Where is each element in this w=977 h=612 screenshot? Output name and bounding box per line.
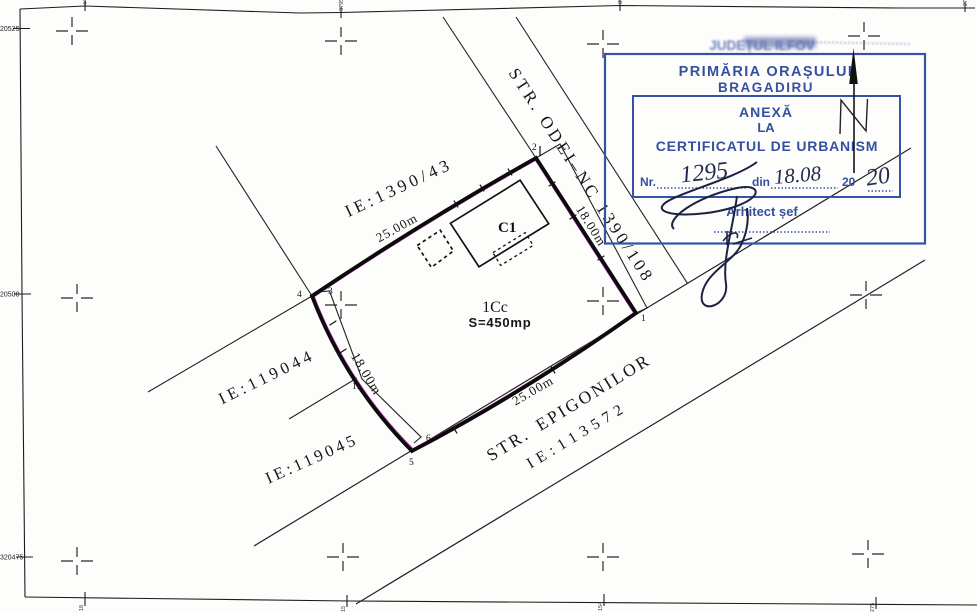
svg-text:4: 4 [297, 290, 302, 300]
svg-text:S=450mp: S=450mp [468, 315, 531, 330]
svg-text:320475: 320475 [0, 555, 23, 562]
svg-text:JUDEȚUL ILFOV: JUDEȚUL ILFOV [709, 38, 815, 53]
svg-text:154: 154 [598, 602, 604, 611]
svg-text:5: 5 [409, 458, 414, 468]
svg-text:2: 2 [532, 143, 537, 153]
svg-text:275: 275 [963, 0, 969, 6]
svg-text:1295: 1295 [679, 158, 729, 189]
svg-text:20500: 20500 [0, 292, 20, 299]
svg-text:PRIMĂRIA ORAȘULUI: PRIMĂRIA ORAȘULUI [679, 63, 854, 80]
svg-text:20525: 20525 [0, 26, 20, 33]
svg-text:din: din [752, 175, 770, 189]
svg-text:3792: 3792 [618, 0, 624, 4]
svg-text:275: 275 [870, 603, 876, 612]
svg-text:1Cc: 1Cc [482, 299, 508, 316]
svg-text:CERTIFICATUL DE URBANISM: CERTIFICATUL DE URBANISM [656, 138, 878, 154]
svg-text:3: 3 [328, 287, 333, 297]
svg-text:18: 18 [79, 605, 85, 611]
svg-text:Nr.: Nr. [640, 175, 656, 189]
svg-text:20: 20 [842, 175, 856, 189]
svg-text:18.08: 18.08 [773, 161, 823, 189]
svg-text:11: 11 [352, 382, 361, 392]
svg-text:C1: C1 [498, 220, 516, 236]
svg-text:446: 446 [83, 0, 89, 5]
svg-text:3795: 3795 [339, 0, 345, 11]
svg-text:6: 6 [426, 434, 431, 444]
svg-text:20: 20 [864, 163, 891, 192]
svg-text:1: 1 [641, 314, 646, 324]
svg-text:ANEXĂ: ANEXĂ [739, 104, 793, 120]
svg-text:15: 15 [341, 606, 347, 612]
svg-text:LA: LA [757, 120, 775, 135]
svg-text:BRAGADIRU: BRAGADIRU [718, 80, 814, 95]
